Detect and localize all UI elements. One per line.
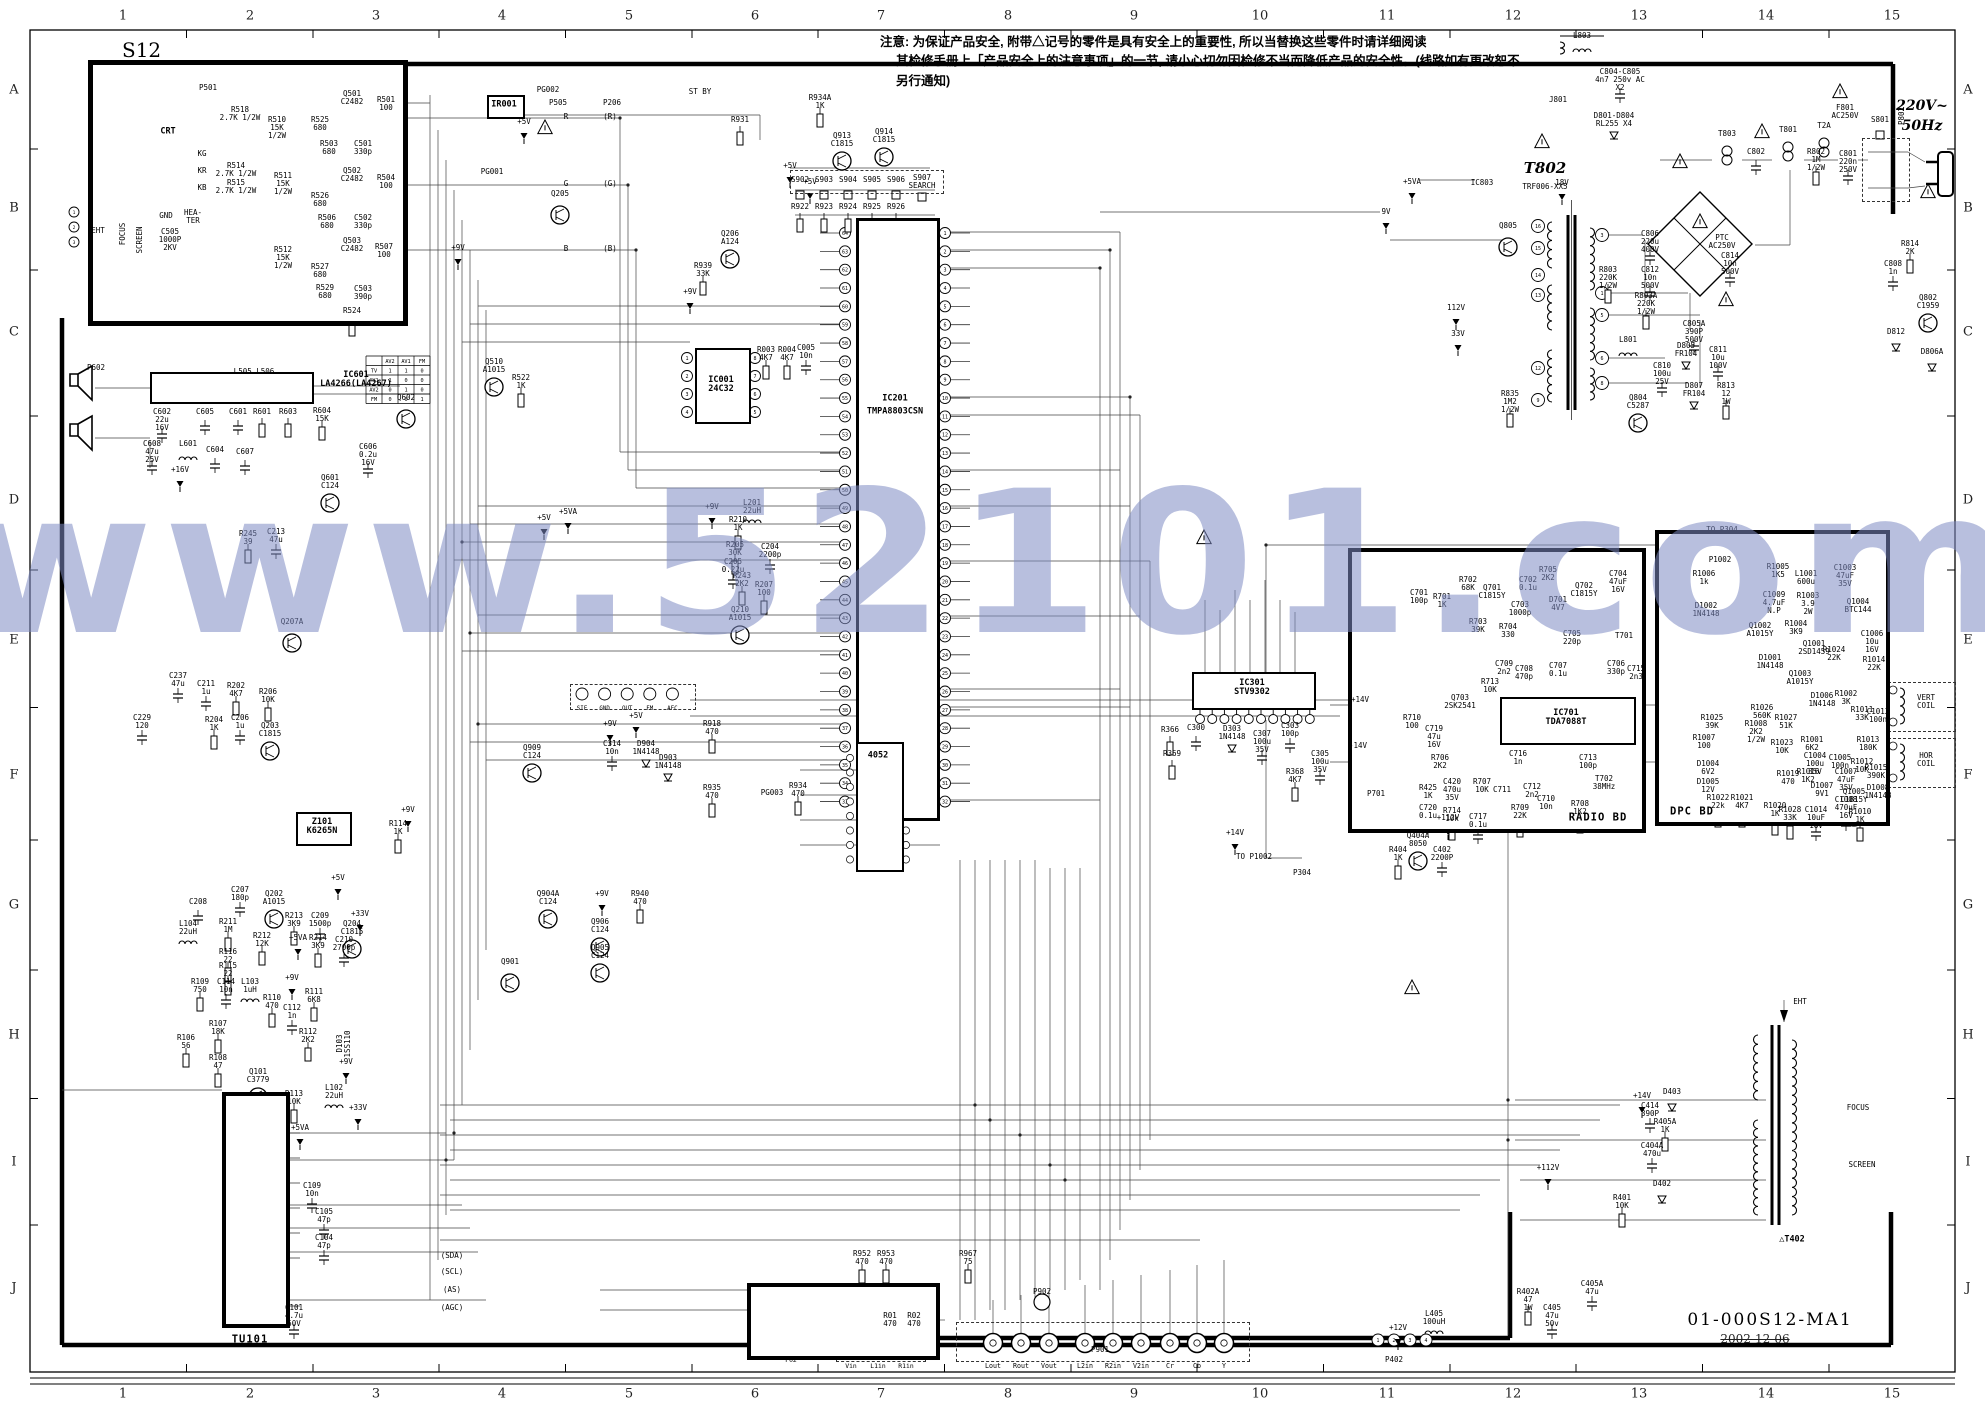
component-label: +5V: [629, 712, 643, 720]
component-label: CRT: [160, 127, 175, 136]
component-label: D303 1N4148: [1218, 725, 1245, 741]
component-label: R525 680: [311, 116, 329, 132]
pin-label: FM: [371, 397, 377, 403]
component-label: L1001 600u: [1795, 570, 1818, 586]
resistor-icon: [1857, 828, 1863, 841]
transistor-icon: [321, 494, 339, 512]
grid-col-top: 1: [119, 9, 127, 24]
component-label: Q905 C124: [591, 944, 609, 960]
pin-label: 6: [753, 392, 756, 398]
pin-label: 3: [73, 240, 76, 246]
pin-label: 25: [942, 671, 948, 677]
rail-arrow-icon: [177, 481, 184, 487]
component-label: R213 3K9: [285, 912, 303, 928]
component-label: R510 15K 1/2W: [268, 116, 286, 140]
component-label: R923: [815, 203, 833, 211]
transistor-icon: [875, 148, 893, 166]
rail-arrow-icon: [633, 727, 640, 733]
component-label: R714 10k: [1443, 807, 1461, 823]
component-label: C402 2200P: [1431, 846, 1454, 862]
pin-circle: [1034, 1294, 1050, 1310]
pin-label: 12: [942, 433, 948, 439]
rail-arrow-icon: [1545, 1179, 1552, 1185]
component-label: R926: [887, 203, 905, 211]
sheet-title: S12: [122, 38, 161, 62]
grid-col-top: 7: [877, 9, 885, 24]
component-label: D812: [1887, 328, 1905, 336]
component-label: R112 2K2: [299, 1028, 317, 1044]
ic4052-block: [856, 742, 904, 872]
component-label: C501 330p: [354, 140, 372, 156]
safety-notice-line2: 其检修手册上「产品安全上的注意事项」的一节, 请小心切勿因检修不当而降低产品的安…: [896, 52, 1520, 91]
resistor-icon: [1787, 826, 1793, 839]
grid-row-left: F: [9, 768, 18, 783]
component-label: R507 100: [375, 243, 393, 259]
component-label: C104 47p: [315, 1234, 333, 1250]
component-label: C314 10n: [603, 740, 621, 756]
component-label: R524: [343, 307, 361, 315]
component-label: 4052: [868, 751, 888, 760]
component-label: (R): [603, 113, 617, 121]
component-label: Q913 C1815: [831, 132, 854, 148]
component-label: D1001 1N4148: [1756, 654, 1783, 670]
component-label: +14V: [1226, 829, 1244, 837]
grid-col-top: 5: [625, 9, 633, 24]
pin-label: Cr: [1166, 1362, 1174, 1370]
pin-label: 16: [1535, 224, 1541, 230]
pin-label: 15: [942, 488, 948, 494]
pin-label: 11: [942, 414, 948, 420]
rail-arrow-icon: [1232, 844, 1239, 850]
component-label: +9V: [683, 288, 697, 296]
resistor-icon: [1813, 172, 1819, 185]
pin-label: 23: [942, 634, 948, 640]
winding-icon: [1548, 285, 1553, 330]
pin-circle: [1269, 715, 1278, 724]
component-label: P602: [87, 364, 105, 372]
rail-arrow-icon: [599, 905, 606, 911]
pin-label: 1: [73, 210, 76, 216]
rail-arrow-icon: [335, 889, 342, 895]
resistor-icon: [1292, 788, 1298, 801]
grid-col-bottom: 15: [1884, 1387, 1901, 1402]
resistor-icon: [245, 550, 251, 563]
component-label: D403: [1663, 1088, 1681, 1096]
component-label: C1014 10uF 16V: [1805, 806, 1828, 830]
winding-icon: [1590, 308, 1595, 360]
component-label: TU101: [232, 1334, 269, 1345]
grid-row-left: B: [9, 201, 19, 216]
component-label: C707 0.1u: [1549, 662, 1567, 678]
component-label: R1006 1k: [1693, 570, 1716, 586]
component-label: R705 2K2: [1539, 566, 1557, 582]
resistor-icon: [395, 840, 401, 853]
transistor-icon: [551, 206, 569, 224]
component-label: D903 1N4148: [654, 754, 681, 770]
resistor-icon: [518, 394, 524, 407]
diode-icon: [1690, 402, 1698, 409]
pin-label: 5: [943, 304, 946, 310]
component-label: S904: [839, 176, 857, 184]
resistor-icon: [269, 1014, 275, 1027]
pin-label: AV1: [401, 359, 410, 365]
component-label: T803: [1718, 130, 1736, 138]
pin-label: 59: [842, 323, 848, 329]
resistor-icon: [197, 998, 203, 1011]
resistor-icon: [315, 954, 321, 967]
component-label: IC201: [882, 394, 908, 403]
pin-label: 9: [1536, 398, 1539, 404]
component-label: L505 L506: [234, 368, 275, 376]
pin-label: 38: [842, 708, 848, 714]
resistor-icon: [215, 1040, 221, 1053]
grid-col-bottom: 11: [1379, 1387, 1396, 1402]
grid-col-top: 2: [246, 9, 254, 24]
pin-label: 5: [753, 410, 756, 416]
component-label: D701 4V7: [1549, 596, 1567, 612]
resistor-icon: [739, 592, 745, 605]
pin-label: 14: [942, 469, 948, 475]
component-label: Q904A C124: [537, 890, 560, 906]
component-label: P902: [1033, 1288, 1051, 1296]
rail-arrow-icon: [1455, 345, 1462, 351]
component-label: Q204 C1815: [341, 920, 364, 936]
component-label: PG002: [537, 86, 560, 94]
pin-label: 1: [420, 397, 423, 403]
component-label: Q510 A1015: [483, 358, 506, 374]
resistor-icon: [1643, 316, 1649, 329]
component-label: R01 470: [883, 1312, 897, 1328]
component-label: R212 12K: [253, 932, 271, 948]
pin-label: 10: [942, 396, 948, 402]
grid-col-bottom: 2: [246, 1387, 254, 1402]
component-label: R1003 3.9 2W: [1797, 592, 1820, 616]
resistor-icon: [1605, 290, 1611, 303]
grid-row-left: C: [9, 325, 19, 340]
inductor-icon: [1425, 1331, 1443, 1334]
grid-row-right: E: [1963, 633, 1973, 648]
drawing-number: 01-000S12-MA1: [1640, 1310, 1900, 1330]
component-label: C808 1n: [1884, 260, 1902, 276]
component-label: DPC BD: [1670, 806, 1714, 817]
pin-label: 21: [942, 598, 948, 604]
component-label: Q202 A1015: [263, 890, 286, 906]
diode-icon: [1610, 132, 1618, 139]
component-label: R1026 560K: [1751, 704, 1774, 720]
component-label: R953 470: [877, 1250, 895, 1266]
rail-arrow-icon: [1559, 194, 1566, 200]
schematic-canvas: 112312364STB BY63RMT-IN62TV Sync61AV260A…: [0, 0, 1985, 1404]
component-label: R814 2K: [1901, 240, 1919, 256]
component-label: FOCUS: [1847, 1104, 1870, 1112]
diode-icon: [1228, 745, 1236, 752]
pin-label: 63: [842, 249, 848, 255]
component-label: IC001 24C32: [708, 376, 734, 394]
component-label: R940 470: [631, 890, 649, 906]
component-label: Q701 C1815Y: [1478, 584, 1505, 600]
component-label: C209 1500p: [309, 912, 332, 928]
pin-label: 58: [842, 341, 848, 347]
grid-row-left: A: [9, 83, 18, 98]
rail-arrow-icon: [289, 989, 296, 995]
component-label: R925: [863, 203, 881, 211]
component-label: D806A: [1921, 348, 1944, 356]
resistor-icon: [784, 366, 790, 379]
pin-label: 3: [685, 392, 688, 398]
component-label: R1025 39K: [1701, 714, 1724, 730]
component-label: Q1002 A1015Y: [1746, 622, 1773, 638]
component-label: P1002: [1709, 556, 1732, 564]
component-label: C204 2200p: [759, 543, 782, 559]
pin-label: 12: [1535, 366, 1541, 372]
component-label: S906: [887, 176, 905, 184]
component-label: +12V: [1389, 1324, 1407, 1332]
component-label: TO P1002: [1236, 853, 1272, 861]
component-label: C708 470p: [1515, 665, 1533, 681]
component-label: C502 330p: [354, 214, 372, 230]
component-label: R205 30K: [726, 541, 744, 557]
component-label: R108 47: [209, 1054, 227, 1070]
pin-label: 3: [1409, 1338, 1412, 1344]
safety-notice-line1: 注意: 为保证产品安全, 附带△记号的零件是具有安全上的重要性, 所以当替换这些…: [880, 33, 1520, 52]
component-label: Q702 C1815Y: [1570, 582, 1597, 598]
pin-label: 1: [685, 356, 688, 362]
component-label: P304: [1293, 869, 1311, 877]
component-label: C704 47uF 16V: [1609, 570, 1627, 594]
component-label: R109 750: [191, 978, 209, 994]
pin-label: 54: [842, 414, 848, 420]
winding-icon: [1590, 368, 1595, 400]
component-label: R1004 3K9: [1785, 620, 1808, 636]
component-label: (AGC): [441, 1304, 464, 1312]
component-label: D801-D804 RL255 X4: [1594, 112, 1635, 128]
resistor-icon: [763, 366, 769, 379]
grid-col-top: 4: [498, 9, 506, 24]
component-label: C812 10n 500V: [1641, 266, 1659, 290]
component-label: R402A 47 1W: [1517, 1288, 1540, 1312]
component-label: R115 22: [219, 962, 237, 978]
pin-label: 60: [842, 304, 848, 310]
grid-row-right: D: [1963, 493, 1973, 508]
component-label: C602 22u 16V: [153, 408, 171, 432]
resistor-icon: [1507, 414, 1513, 427]
component-label: C720 0.1u: [1419, 804, 1437, 820]
grid-row-right: I: [1965, 1155, 1970, 1170]
pin-label: 24: [942, 653, 948, 659]
pin-label: 1: [404, 369, 407, 375]
inductor-icon: [179, 941, 197, 944]
component-label: S907 SEARCH: [908, 174, 935, 190]
pin-label: 1: [1377, 1338, 1380, 1344]
component-label: R003 4K7: [757, 346, 775, 362]
grid-col-bottom: 12: [1505, 1387, 1522, 1402]
resistor-icon: [183, 1054, 189, 1067]
component-label: C606 0.2u 16V: [359, 443, 377, 467]
component-label: R114 1K: [389, 820, 407, 836]
component-label: R952 470: [853, 1250, 871, 1266]
component-label: S905: [863, 176, 881, 184]
pin-label: FM: [419, 359, 425, 365]
component-label: C414 390P: [1641, 1102, 1659, 1118]
pin-label: 27: [942, 708, 948, 714]
ic601-block: [150, 372, 314, 404]
component-label: D402: [1653, 1180, 1671, 1188]
rail-arrow-icon: [565, 523, 572, 529]
resistor-icon: [265, 708, 271, 721]
winding-icon: [1753, 1035, 1758, 1100]
pin-label: 2: [943, 249, 946, 255]
grid-col-top: 11: [1379, 9, 1396, 24]
winding-icon: [1792, 1040, 1797, 1215]
component-label: P901: [1091, 1346, 1109, 1354]
component-label: +9V: [603, 720, 617, 728]
component-label: R243 2K2: [733, 572, 751, 588]
component-label: R709 22K: [1511, 804, 1529, 820]
component-label: R514 2.7K 1/2W: [216, 162, 257, 178]
component-label: C229 120: [133, 714, 151, 730]
resistor-icon: [709, 804, 715, 817]
component-label: R211 1M: [219, 918, 237, 934]
grid-col-bottom: 7: [877, 1387, 885, 1402]
component-label: C605: [196, 408, 214, 416]
component-label: D1005 12V: [1697, 778, 1720, 794]
component-label: R206 10K: [259, 688, 277, 704]
pin-label: 61: [842, 286, 848, 292]
component-label: C237 47u: [169, 672, 187, 688]
grid-col-bottom: 5: [625, 1387, 633, 1402]
component-label: R1010 1K: [1849, 808, 1872, 824]
component-label: +5V: [331, 874, 345, 882]
component-label: TRF006-XX5: [1522, 183, 1567, 191]
pin-label: 0: [420, 388, 423, 394]
component-label: +9V: [401, 806, 415, 814]
pin-label: 39: [842, 690, 848, 696]
component-label: R1008 2K2 1/2W: [1745, 720, 1768, 744]
component-label: R707 10K: [1473, 778, 1491, 794]
pin-label: 7: [943, 341, 946, 347]
component-label: L601: [179, 440, 197, 448]
component-label: C802: [1747, 148, 1765, 156]
component-label: R202 4K7: [227, 682, 245, 698]
component-label: R1015 390K: [1865, 764, 1888, 780]
component-label: R404 1K: [1389, 846, 1407, 862]
resistor-icon: [817, 114, 823, 127]
resistor-icon: [319, 427, 325, 440]
grid-col-bottom: 10: [1252, 1387, 1269, 1402]
pin-label: 4: [943, 286, 946, 292]
pin-label: 29: [942, 745, 948, 751]
component-label: R1024 22K: [1823, 646, 1846, 662]
component-label: PG003: [761, 789, 784, 797]
pin-label: R1in: [898, 1362, 914, 1370]
component-label: +5V: [783, 162, 797, 170]
component-label: R504 100: [377, 174, 395, 190]
grid-col-top: 13: [1631, 9, 1648, 24]
component-label: C405 47u 50v: [1543, 1304, 1561, 1328]
component-label: R401 10K: [1613, 1194, 1631, 1210]
component-label: RADIO BD: [1569, 812, 1628, 823]
component-label: Q802 C1959: [1917, 294, 1940, 310]
component-label: C305 100u 35V: [1311, 750, 1329, 774]
grid-row-left: G: [9, 898, 19, 913]
resistor-icon: [700, 282, 706, 295]
transistor-icon: [721, 250, 739, 268]
rail-arrow-icon: [1409, 193, 1416, 199]
component-label: Q203 C1815: [259, 722, 282, 738]
component-label: C404A 470u: [1641, 1142, 1664, 1158]
component-label: Q205: [551, 190, 569, 198]
component-label: IC601 LA4266(LA4267): [320, 371, 392, 389]
component-label: Q906 C124: [591, 918, 609, 934]
component-label: C1009 4.7uF N.P: [1763, 591, 1786, 615]
component-label: C806 220u 400V: [1641, 230, 1659, 254]
pin-label: 46: [842, 561, 848, 567]
component-label: R713 10K: [1481, 678, 1499, 694]
component-label: C814 10n 500V: [1721, 252, 1739, 276]
grid-row-left: E: [9, 633, 19, 648]
component-label: R1023 10K: [1771, 739, 1794, 755]
component-label: Q601 C124: [321, 474, 339, 490]
pin-label: 30: [942, 763, 948, 769]
pin-label: 5: [1600, 313, 1603, 319]
component-label: D1004 6V2: [1697, 760, 1720, 776]
component-label: +14V: [1633, 1092, 1651, 1100]
component-label: IC803: [1471, 179, 1494, 187]
component-label: R207 100: [755, 581, 773, 597]
component-label: 33V: [1451, 330, 1465, 338]
pin-circle: [846, 841, 853, 848]
rail-arrow-icon: [521, 133, 528, 139]
transistor-icon: [1629, 414, 1647, 432]
component-label: B: [564, 245, 569, 253]
diode-icon: [1682, 362, 1690, 369]
pin-label: L1in: [870, 1362, 886, 1370]
component-label: +5VA: [1403, 178, 1421, 186]
pin-label: 42: [842, 634, 848, 640]
component-label: R503 680: [320, 140, 338, 156]
grid-row-right: F: [1963, 768, 1972, 783]
resistor-icon: [259, 424, 265, 437]
diode-icon: [642, 760, 650, 767]
winding-icon: [1560, 42, 1565, 54]
component-label: TO P304: [1706, 526, 1738, 534]
pin-circle: [846, 856, 853, 863]
resistor-icon: [305, 1048, 311, 1061]
pin-label: 49: [842, 506, 848, 512]
pin-label: 57: [842, 359, 848, 365]
component-label: C601: [229, 408, 247, 416]
resistor-icon: [1619, 1214, 1625, 1227]
component-label: C716 1n: [1509, 750, 1527, 766]
component-label: D103 1SS110: [336, 1030, 352, 1057]
component-label: D1002 1N4148: [1692, 602, 1719, 618]
pin-label: Y: [1222, 1362, 1226, 1370]
component-label: (AS): [443, 1286, 461, 1294]
resistor-icon: [845, 219, 851, 232]
component-label: C608 47u 25V: [143, 440, 161, 464]
component-label: EHT: [1793, 998, 1807, 1006]
pin-label: Lout: [985, 1362, 1001, 1370]
component-label: R835 1M2 1/2W: [1501, 390, 1519, 414]
pin-label: Vin: [845, 1362, 857, 1370]
component-label: Q404A 8050: [1407, 832, 1430, 848]
inductor-icon: [1573, 49, 1591, 52]
component-label: +9V: [285, 974, 299, 982]
component-label: +9V: [705, 503, 719, 511]
component-label: +5V: [803, 178, 817, 186]
pin-label: 36: [842, 745, 848, 751]
transistor-icon: [731, 626, 749, 644]
